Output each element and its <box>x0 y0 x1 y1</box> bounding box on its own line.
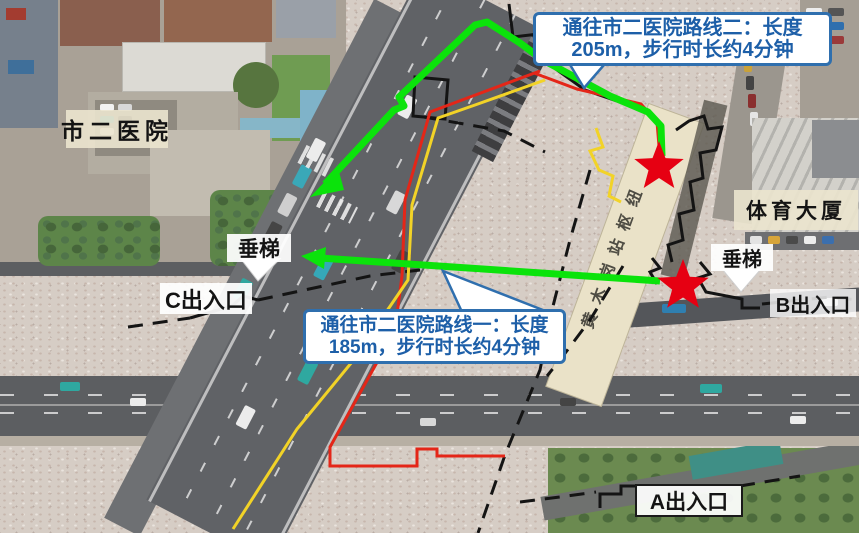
callout-route2-line1: 通往市二医院路线二：长度 <box>536 17 829 39</box>
elevator-right-tail <box>722 269 761 292</box>
callout-route1-line1: 通往市二医院路线一：长度 <box>306 315 563 337</box>
building-roof <box>60 0 160 46</box>
aerial-map: 黄木岗站枢纽 <box>0 0 859 533</box>
sidewalk <box>0 436 859 446</box>
callout-route1: 通往市二医院路线一：长度 185m，步行时长约4分钟 <box>303 309 566 364</box>
exit-a-label: A出入口 <box>635 484 743 517</box>
elevator-right-label: 垂梯 <box>711 244 773 271</box>
callout-route1-line2: 185m，步行时长约4分钟 <box>306 337 563 359</box>
road-median <box>0 404 859 406</box>
park <box>38 216 160 266</box>
sports-building-label: 体育大厦 <box>734 190 858 230</box>
callout-route2-line2: 205m，步行时长约4分钟 <box>536 39 829 61</box>
exit-b-label: B出入口 <box>770 289 856 317</box>
elevator-left-label: 垂梯 <box>227 234 291 262</box>
building-roof <box>164 0 272 42</box>
callout-route1-tail <box>443 271 548 312</box>
exit-c-label: C出入口 <box>160 283 252 314</box>
hospital-label: 市二医院 <box>66 110 168 148</box>
garden-circle <box>233 62 279 108</box>
building <box>812 120 859 178</box>
building-roof <box>6 8 26 20</box>
callout-route2: 通往市二医院路线二：长度 205m，步行时长约4分钟 <box>533 12 832 66</box>
building <box>276 0 336 38</box>
building-roof <box>8 60 34 74</box>
main-road-horizontal <box>0 376 859 436</box>
